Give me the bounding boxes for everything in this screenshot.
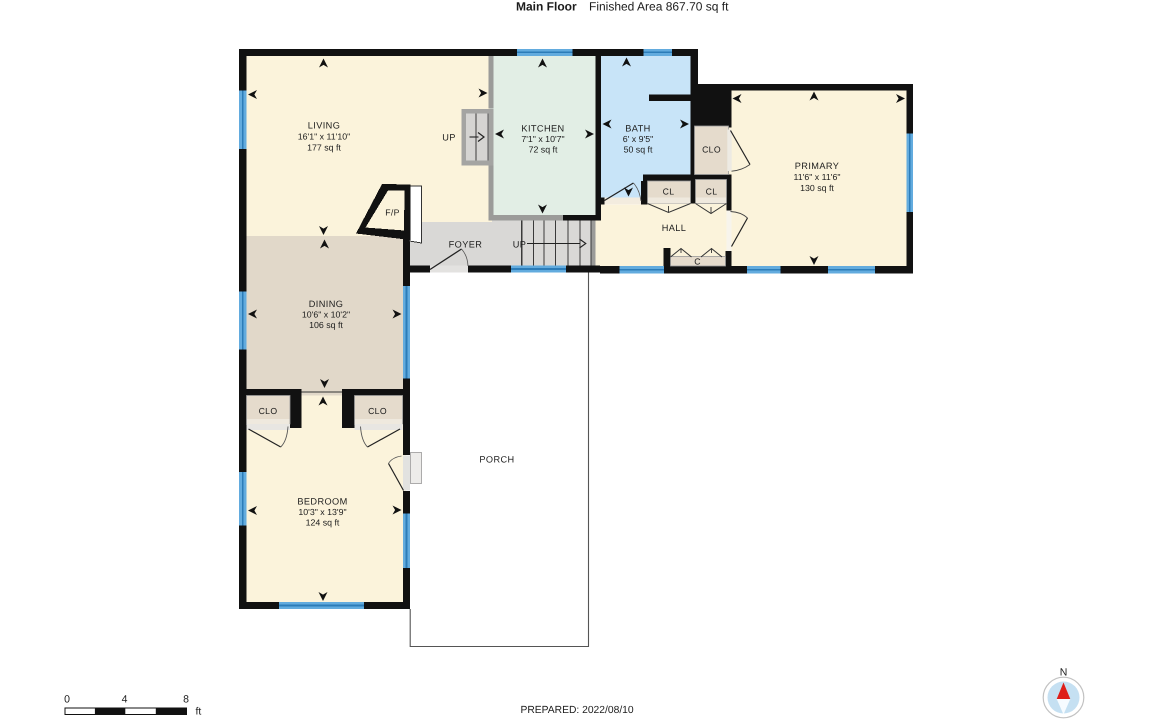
svg-text:BATH: BATH (625, 124, 650, 134)
svg-text:4: 4 (122, 694, 128, 706)
svg-text:72 sq ft: 72 sq ft (529, 145, 558, 155)
svg-text:UP: UP (513, 240, 527, 250)
svg-text:177 sq ft: 177 sq ft (307, 143, 341, 153)
svg-text:Main Floor: Main Floor (516, 0, 577, 14)
svg-text:0: 0 (64, 694, 70, 706)
svg-text:50 sq ft: 50 sq ft (624, 145, 653, 155)
svg-text:CLO: CLO (259, 406, 278, 416)
svg-text:7'1" x 10'7": 7'1" x 10'7" (521, 134, 564, 144)
svg-text:Finished Area 867.70 sq ft: Finished Area 867.70 sq ft (589, 0, 729, 14)
svg-text:11'6" x 11'6": 11'6" x 11'6" (794, 172, 841, 182)
svg-text:PREPARED: 2022/08/10: PREPARED: 2022/08/10 (521, 705, 634, 716)
svg-text:F/P: F/P (385, 208, 399, 218)
svg-text:10'6" x 10'2": 10'6" x 10'2" (302, 310, 350, 320)
svg-text:HALL: HALL (662, 223, 687, 233)
svg-text:130 sq ft: 130 sq ft (800, 183, 834, 193)
svg-text:16'1" x 11'10": 16'1" x 11'10" (298, 132, 351, 142)
svg-text:UP: UP (442, 133, 456, 143)
svg-text:LIVING: LIVING (308, 121, 341, 131)
svg-text:106 sq ft: 106 sq ft (309, 320, 343, 330)
svg-text:C: C (694, 257, 701, 267)
svg-text:CLO: CLO (368, 406, 387, 416)
svg-text:CL: CL (663, 187, 675, 197)
svg-text:FOYER: FOYER (449, 240, 483, 250)
svg-text:10'3" x 13'9": 10'3" x 13'9" (298, 507, 346, 517)
svg-text:ft: ft (196, 706, 202, 718)
svg-text:8: 8 (183, 694, 189, 706)
svg-text:PRIMARY: PRIMARY (795, 161, 840, 171)
svg-text:DINING: DINING (309, 299, 344, 309)
svg-text:KITCHEN: KITCHEN (521, 124, 564, 134)
svg-text:PORCH: PORCH (479, 455, 514, 465)
svg-text:CLO: CLO (702, 145, 721, 155)
svg-text:6' x 9'5": 6' x 9'5" (623, 134, 653, 144)
svg-text:124 sq ft: 124 sq ft (306, 518, 340, 528)
svg-text:BEDROOM: BEDROOM (297, 497, 347, 507)
svg-text:CL: CL (706, 187, 718, 197)
